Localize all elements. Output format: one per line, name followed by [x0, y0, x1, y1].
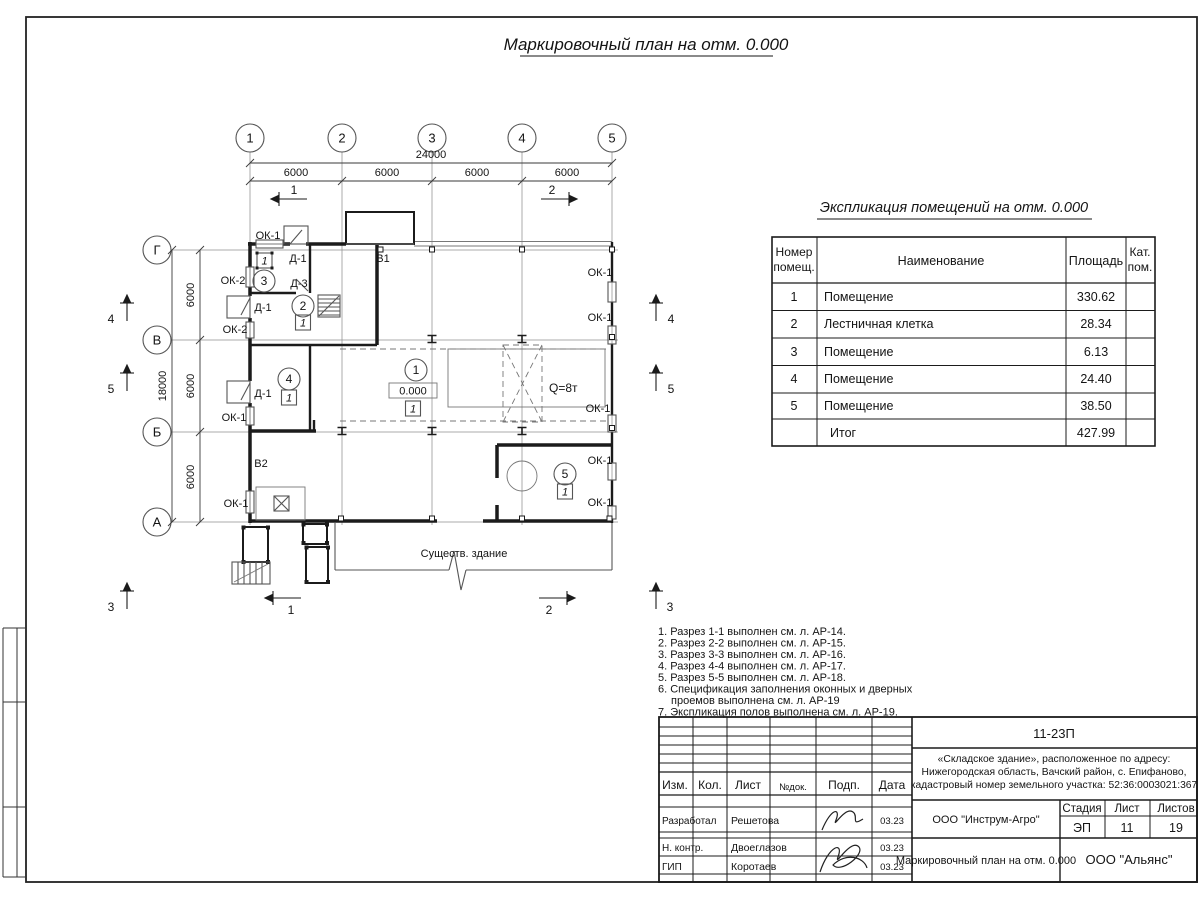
title-block: Изм. Кол. Лист №док. Подп. Дата Разработ…: [659, 717, 1198, 882]
floor-tag-3: 1: [261, 256, 267, 268]
col-izm: Изм.: [662, 778, 688, 792]
section-mark-1-bottom: 1: [288, 603, 295, 617]
title-block-right: 11-23П «Складское здание», расположенное…: [896, 726, 1198, 867]
name-developed: Решетова: [731, 815, 779, 827]
sheet-frame: [3, 17, 1197, 882]
schedule-h-area: Площадь: [1069, 254, 1123, 268]
floor-plan: 1 2 3 4 5 Г В Б А 24000 6000 6000 6000 6…: [108, 124, 675, 617]
note-4: 4. Разрез 4-4 выполнен см. л. АР-17.: [658, 661, 846, 673]
floor-tag-4: 1: [286, 393, 292, 405]
row3-area: 6.13: [1084, 345, 1108, 359]
date-developed: 03.23: [880, 816, 904, 827]
label-d1-left2: Д-1: [254, 388, 271, 400]
floor-tag-5: 1: [562, 487, 568, 499]
label-ok2-2: ОК-2: [223, 324, 248, 336]
crane-zone: Q=8т: [340, 345, 608, 422]
grid-row-a: А: [153, 515, 162, 530]
equipment-box: [256, 487, 305, 520]
name-ncontr: Двоеглазов: [731, 842, 787, 854]
role-gip: ГИП: [662, 862, 682, 873]
crane-capacity-label: Q=8т: [549, 381, 578, 395]
label-ok1-top: ОК-1: [256, 230, 281, 242]
row3-name: Помещение: [824, 345, 893, 359]
room-tag-1: 1: [413, 363, 420, 377]
role-ncontr: Н. контр.: [662, 843, 703, 854]
section-mark-5-right: 5: [668, 382, 675, 396]
sheet-number: 11: [1121, 821, 1134, 835]
floor-tag-2: 1: [300, 318, 306, 330]
dim-vbay-2: 6000: [185, 374, 197, 398]
section-mark-3-br: 3: [667, 600, 674, 614]
section-mark-4-right: 4: [668, 312, 675, 326]
dim-bay-2: 6000: [375, 167, 399, 179]
signature-developed: [822, 811, 863, 830]
dimensions-top: 24000 6000 6000 6000 6000: [246, 149, 616, 185]
row4-area: 24.40: [1080, 372, 1111, 386]
dim-total-height: 18000: [157, 371, 169, 402]
schedule-h-cat1: Кат.: [1130, 245, 1151, 259]
row4-name: Помещение: [824, 372, 893, 386]
row3-num: 3: [791, 345, 798, 359]
sheet-label: Лист: [1115, 803, 1141, 815]
section-mark-4-left: 4: [108, 312, 115, 326]
elevation-mark: 0.000: [399, 386, 427, 398]
total-label: Итог: [830, 426, 857, 440]
label-ok1-r3: ОК-1: [586, 403, 611, 415]
left-margin-boxes: [3, 628, 26, 877]
room-tag-5: 5: [562, 467, 569, 481]
grid-col-5: 5: [608, 131, 615, 146]
drawing-title: Маркировочный план на отм. 0.000: [896, 855, 1076, 867]
stairs: [318, 295, 340, 317]
label-ok1-r5: ОК-1: [588, 497, 613, 509]
address-line3: кадастровый номер земельного участка: 52…: [911, 780, 1198, 791]
schedule-row-2: 2 Лестничная клетка 28.34: [791, 317, 1112, 331]
dimensions-left: 18000 6000 6000 6000: [157, 246, 204, 526]
grid-lines: [171, 152, 618, 525]
total-area: 427.99: [1077, 426, 1115, 440]
sheets-total: 19: [1169, 821, 1183, 835]
label-ok1-r4: ОК-1: [588, 455, 613, 467]
schedule-row-3: 3 Помещение 6.13: [791, 345, 1109, 359]
section-mark-1-top: 1: [291, 183, 298, 197]
org-name: ООО "Инструм-Агро": [932, 814, 1039, 826]
col-kol: Кол.: [698, 778, 722, 792]
sheet-title-text: Маркировочный план на отм. 0.000: [504, 35, 789, 54]
address-line1: «Складское здание», расположенное по адр…: [938, 754, 1171, 765]
address-line2: Нижегородская область, Вачский район, с.…: [922, 766, 1187, 778]
room-tag-3: 3: [261, 274, 268, 288]
section-marks: 1 2 4 5 4 5 3 1 2 3: [108, 183, 675, 617]
label-gate-v1: В1: [376, 253, 389, 265]
col-podp: Подп.: [828, 778, 860, 792]
notes: 1. Разрез 1-1 выполнен см. л. АР-14. 2. …: [658, 626, 913, 719]
company-name: ООО "Альянс": [1086, 852, 1173, 867]
porches: [232, 523, 330, 585]
schedule-h-num2: помещ.: [773, 260, 814, 274]
row2-area: 28.34: [1080, 317, 1111, 331]
floor-tag-1: 1: [410, 404, 416, 416]
grid-row-b: Б: [153, 425, 162, 440]
schedule-h-num1: Номер: [776, 245, 813, 259]
grid-row-v: В: [153, 333, 162, 348]
note-2: 2. Разрез 2-2 выполнен см. л. АР-15.: [658, 638, 846, 650]
section-mark-5-left: 5: [108, 382, 115, 396]
dim-bay-3: 6000: [465, 167, 489, 179]
label-ok1-left1: ОК-1: [222, 412, 247, 424]
room-tag-4: 4: [286, 372, 293, 386]
section-mark-3-bl: 3: [108, 600, 115, 614]
name-gip: Коротаев: [731, 861, 777, 873]
row5-name: Помещение: [824, 399, 893, 413]
grid-col-3: 3: [428, 131, 435, 146]
stage-value: ЭП: [1073, 821, 1091, 835]
note-6b: проемов выполнена см. л. АР-19: [671, 695, 840, 707]
date-ncontr: 03.23: [880, 843, 904, 854]
existing-building-label: Существ. здание: [421, 548, 508, 560]
label-ok1-r2: ОК-1: [588, 312, 613, 324]
schedule-row-5: 5 Помещение 38.50: [791, 399, 1112, 413]
dim-bay-4: 6000: [555, 167, 579, 179]
section-mark-2-top: 2: [549, 183, 556, 197]
note-5: 5. Разрез 5-5 выполнен см. л. АР-18.: [658, 672, 846, 684]
col-ndok: №док.: [779, 782, 807, 793]
label-ok1-r1: ОК-1: [588, 267, 613, 279]
drawing-sheet: Маркировочный план на отм. 0.000 1 2 3 4…: [0, 0, 1200, 900]
schedule-row-4: 4 Помещение 24.40: [791, 372, 1112, 386]
row5-num: 5: [791, 399, 798, 413]
sheet-title: Маркировочный план на отм. 0.000: [504, 35, 789, 56]
col-data: Дата: [879, 778, 906, 792]
doc-number: 11-23П: [1033, 726, 1075, 741]
stage-label: Стадия: [1062, 803, 1101, 815]
dim-vbay-1: 6000: [185, 283, 197, 307]
grid-row-g: Г: [153, 243, 160, 258]
note-6a: 6. Спецификация заполнения оконных и две…: [658, 684, 913, 696]
grid-col-4: 4: [518, 131, 525, 146]
dim-bay-1: 6000: [284, 167, 308, 179]
schedule-header: Номер помещ. Наименование Площадь Кат. п…: [773, 245, 1152, 274]
role-developed: Разработал: [662, 815, 717, 827]
row2-name: Лестничная клетка: [824, 317, 934, 331]
section-mark-2-bottom: 2: [546, 603, 553, 617]
schedule-h-name: Наименование: [898, 254, 985, 268]
row4-num: 4: [791, 372, 798, 386]
label-d1-left1: Д-1: [254, 302, 271, 314]
grid-col-2: 2: [338, 131, 345, 146]
dim-total-width: 24000: [416, 149, 447, 161]
row1-area: 330.62: [1077, 290, 1115, 304]
sheets-label: Листов: [1157, 803, 1194, 815]
room-tag-2: 2: [300, 299, 307, 313]
row5-area: 38.50: [1080, 399, 1111, 413]
title-block-left: Изм. Кол. Лист №док. Подп. Дата Разработ…: [662, 778, 906, 873]
row1-name: Помещение: [824, 290, 893, 304]
room-schedule: Экспликация помещений на отм. 0.000 Номе…: [772, 200, 1155, 446]
schedule-h-cat2: пом.: [1128, 260, 1153, 274]
signature-gip: [820, 845, 867, 872]
dim-vbay-3: 6000: [185, 465, 197, 489]
label-d1-top: Д-1: [289, 253, 306, 265]
label-d3: Д-3: [290, 278, 307, 290]
grid-bubbles-top: 1 2 3 4 5: [236, 124, 626, 152]
note-3: 3. Разрез 3-3 выполнен см. л. АР-16.: [658, 649, 846, 661]
label-ok2-1: ОК-2: [221, 275, 246, 287]
grid-col-1: 1: [246, 131, 253, 146]
row1-num: 1: [791, 290, 798, 304]
schedule-title: Экспликация помещений на отм. 0.000: [820, 200, 1088, 216]
col-list: Лист: [735, 778, 762, 792]
label-ok1-left2: ОК-1: [224, 498, 249, 510]
label-gate-v2: В2: [254, 458, 267, 470]
note-1: 1. Разрез 1-1 выполнен см. л. АР-14.: [658, 626, 846, 638]
row2-num: 2: [791, 317, 798, 331]
schedule-total-row: Итог 427.99: [830, 426, 1115, 440]
drawing-canvas: Маркировочный план на отм. 0.000 1 2 3 4…: [0, 0, 1200, 900]
existing-building: Существ. здание: [335, 522, 612, 590]
